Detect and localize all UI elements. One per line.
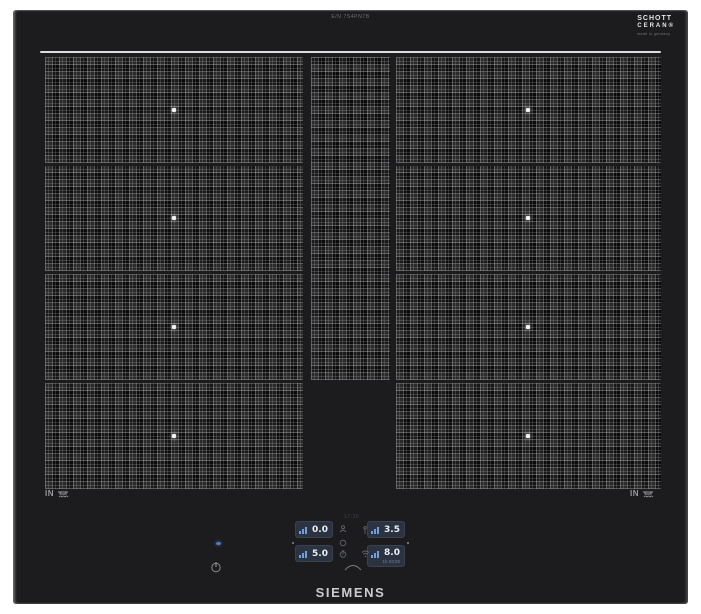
schott-logo-line3: made in germany bbox=[637, 32, 675, 36]
wifi-icon[interactable] bbox=[361, 550, 370, 558]
induction-badge-left: IN bbox=[45, 489, 69, 498]
cooking-zone-middle bbox=[311, 57, 390, 380]
zone-center-marker bbox=[172, 216, 176, 220]
power-level-bars-icon bbox=[371, 526, 380, 534]
schott-logo-line1: SCHOTT bbox=[637, 15, 675, 23]
brand-logo: SIEMENS bbox=[13, 585, 688, 600]
cooking-zone-right-seg4 bbox=[396, 383, 661, 489]
power-icon[interactable] bbox=[210, 561, 222, 573]
zone-center-marker bbox=[526, 434, 530, 438]
zone-level-value: 0.0 bbox=[312, 525, 328, 535]
power-level-bars-icon bbox=[299, 550, 308, 558]
cooking-zone-right-seg2 bbox=[396, 166, 661, 271]
pan-coil-icon bbox=[57, 489, 69, 498]
zone-display-front-right[interactable]: 8.0 1h 03:25 bbox=[367, 545, 405, 567]
zone-center-marker bbox=[172, 108, 176, 112]
induction-badge-left-label: IN bbox=[45, 489, 54, 498]
zone-center-marker bbox=[526, 108, 530, 112]
zone-center-marker bbox=[526, 325, 530, 329]
pause-circle-icon[interactable] bbox=[339, 539, 347, 547]
power-level-bars-icon bbox=[371, 550, 380, 558]
model-number-label: E/N 7S4PN7B bbox=[13, 14, 688, 20]
induction-badge-right-label: IN bbox=[630, 489, 639, 498]
cooking-zone-right-seg1 bbox=[396, 57, 661, 163]
pan-coil-icon bbox=[642, 489, 654, 498]
panel-edge-dot bbox=[407, 542, 409, 544]
clock-display: 17:30 bbox=[344, 514, 359, 520]
product-photo: E/N 7S4PN7B SCHOTT CERAN® made in german… bbox=[0, 0, 701, 614]
zone-display-rear-left[interactable]: 0.0 bbox=[295, 521, 333, 538]
power-level-bars-icon bbox=[299, 526, 308, 534]
cooking-zone-left-seg4 bbox=[45, 383, 303, 489]
status-led bbox=[216, 542, 221, 545]
induction-badge-right: IN bbox=[630, 489, 654, 498]
zone-center-marker bbox=[172, 325, 176, 329]
user-profile-icon[interactable] bbox=[339, 525, 347, 533]
schott-logo-line2: CERAN® bbox=[637, 23, 675, 30]
cooking-zone-right-seg3 bbox=[396, 274, 661, 380]
front-trim-line bbox=[40, 51, 661, 53]
zone-level-value: 5.0 bbox=[312, 549, 328, 559]
induction-hob-surface: E/N 7S4PN7B SCHOTT CERAN® made in german… bbox=[13, 10, 688, 604]
zone-timer-value: 1h 03:25 bbox=[368, 559, 400, 564]
cooking-sensor-icon[interactable] bbox=[361, 526, 369, 535]
timer-icon[interactable] bbox=[339, 550, 347, 558]
schott-ceran-logo: SCHOTT CERAN® made in germany bbox=[637, 15, 675, 36]
zone-display-rear-right[interactable]: 3.5 bbox=[367, 521, 405, 538]
cooking-zone-left-seg2 bbox=[45, 166, 303, 271]
zone-display-front-left[interactable]: 5.0 bbox=[295, 545, 333, 562]
zone-level-value: 3.5 bbox=[384, 525, 400, 535]
cooking-zone-left-seg3 bbox=[45, 274, 303, 380]
cooking-zone-left-seg1 bbox=[45, 57, 303, 163]
pan-arc-icon bbox=[344, 564, 362, 571]
panel-edge-dot bbox=[292, 542, 294, 544]
zone-center-marker bbox=[526, 216, 530, 220]
zone-level-value: 8.0 bbox=[384, 548, 400, 558]
zone-center-marker bbox=[172, 434, 176, 438]
